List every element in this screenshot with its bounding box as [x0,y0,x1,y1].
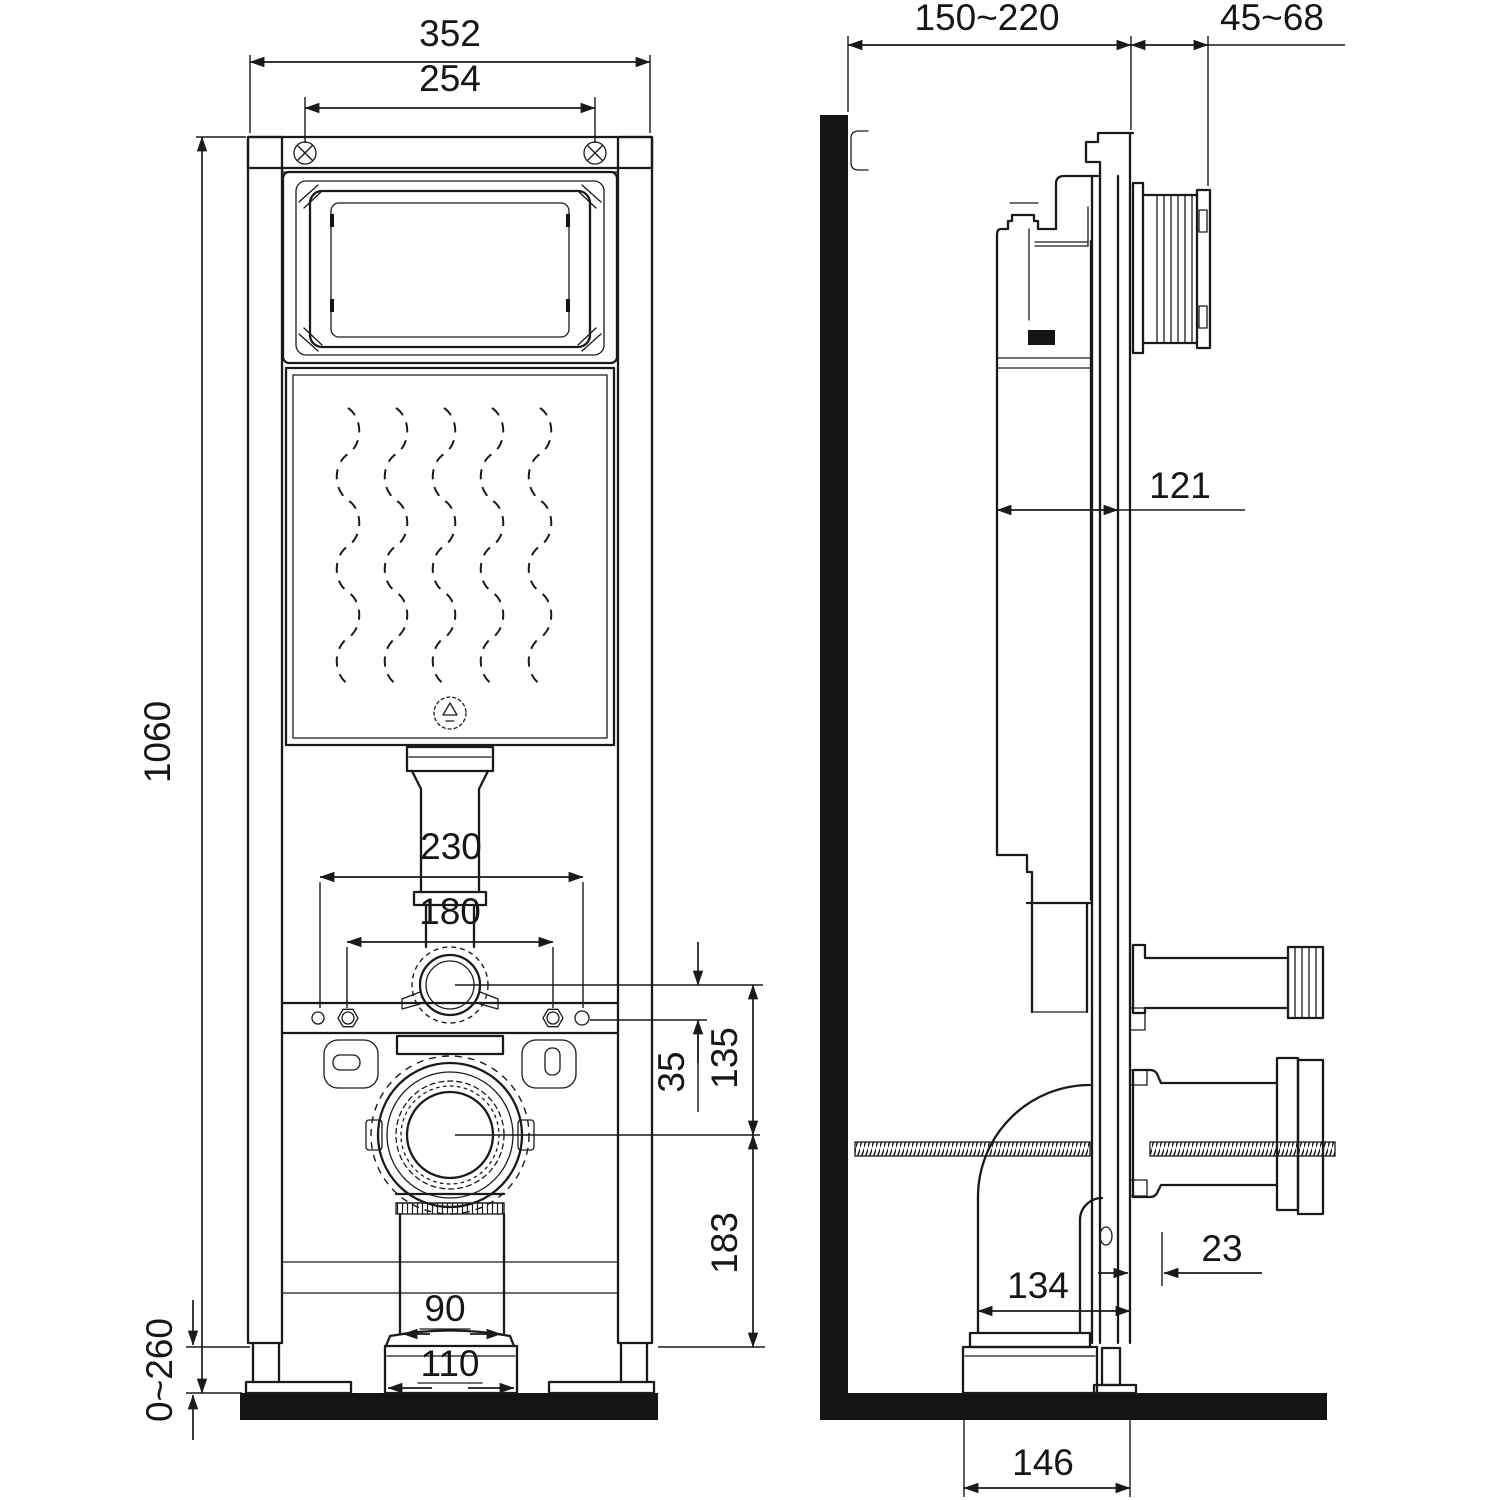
waste-outlet-port [366,1036,534,1214]
dim-floor-offset: 146 [964,1420,1130,1497]
fixing-hole-outer-left [312,1012,324,1024]
dim-label-180: 180 [419,891,481,932]
fixing-hole-outer-right [575,1011,589,1025]
dim-panel-depth: 45~68 [1131,0,1345,186]
dim-label-150-220: 150~220 [914,0,1059,38]
mounting-screw-left [294,142,316,164]
side-foot [1102,1348,1120,1385]
front-view: 352 254 1060 230 180 35 [137,13,765,1440]
top-mounting-bar [248,137,652,172]
waste-connector [1133,1058,1323,1214]
outlet-flange-hatch [396,1203,504,1214]
brand-logo [434,697,466,729]
dim-label-45-68: 45~68 [1220,0,1324,38]
floor-pipe-socket [963,1347,1097,1393]
dim-label-121: 121 [1149,465,1211,506]
threaded-rod-left [855,1142,1090,1156]
dim-label-0-260: 0~260 [139,1318,180,1422]
dim-label-23: 23 [1201,1228,1242,1269]
dim-label-1060: 1060 [137,701,178,783]
dim-pipe-offset: 134 [978,1265,1130,1311]
dim-wall-offset: 150~220 [848,0,1131,130]
dim-label-110: 110 [421,1343,480,1384]
flush-shaft [1133,183,1210,353]
dim-label-35: 35 [651,1051,692,1092]
threaded-rod-right [1150,1142,1335,1156]
frame-rail-left [248,137,282,1343]
water-pattern [337,408,552,684]
wall-hanger-bracket [851,131,868,170]
side-view: 150~220 45~68 121 23 134 146 [820,0,1345,1497]
base-plate [240,1393,658,1420]
foot-left [246,1343,351,1393]
dim-label-254: 254 [419,58,481,99]
rail-top-bracket [1056,133,1133,229]
wall-bracket-right [522,1040,576,1088]
dim-outlet-height: 183 [455,1135,765,1347]
wall-section [820,115,848,1393]
dim-label-183: 183 [704,1212,745,1274]
installation-frame-diagram: 352 254 1060 230 180 35 [0,0,1500,1500]
dim-height: 1060 [137,137,246,1393]
dim-label-90: 90 [424,1288,465,1329]
dim-body-depth: 121 [997,465,1245,510]
waste-elbow [963,1085,1102,1393]
window-corner-braces [299,185,601,351]
inlet-wings [402,992,498,1009]
dim-foot-range: 0~260 [139,1300,250,1440]
flush-plate-window [283,172,617,363]
dim-label-135: 135 [704,1027,745,1089]
dim-label-134: 134 [1007,1265,1069,1306]
dim-label-146: 146 [1012,1442,1074,1483]
dim-rear-gap: 23 [1098,1228,1262,1286]
side-cistern [997,203,1091,1012]
foot-right [549,1343,654,1393]
flush-connector [1133,945,1323,1018]
dim-mount-spacing: 254 [305,58,595,143]
rail-hole [1100,1227,1112,1245]
tank-label [1028,330,1055,345]
mounting-crossbar [283,1003,617,1033]
dim-inlet-outlet: 135 [704,985,753,1135]
frame-rail-right [618,137,652,1343]
dim-label-230: 230 [420,826,482,867]
wall-bracket-left [324,1040,378,1088]
dim-outlet-pipe: 90 [403,1288,501,1334]
dim-label-352: 352 [419,13,481,54]
floor-section [820,1393,1327,1420]
cistern-tank [286,368,614,745]
dim-fix-inner: 180 [347,891,553,1008]
dim-outlet-socket: 110 [388,1343,514,1388]
mounting-screw-right [584,142,606,164]
drawing-sheet: 352 254 1060 230 180 35 [0,0,1500,1500]
